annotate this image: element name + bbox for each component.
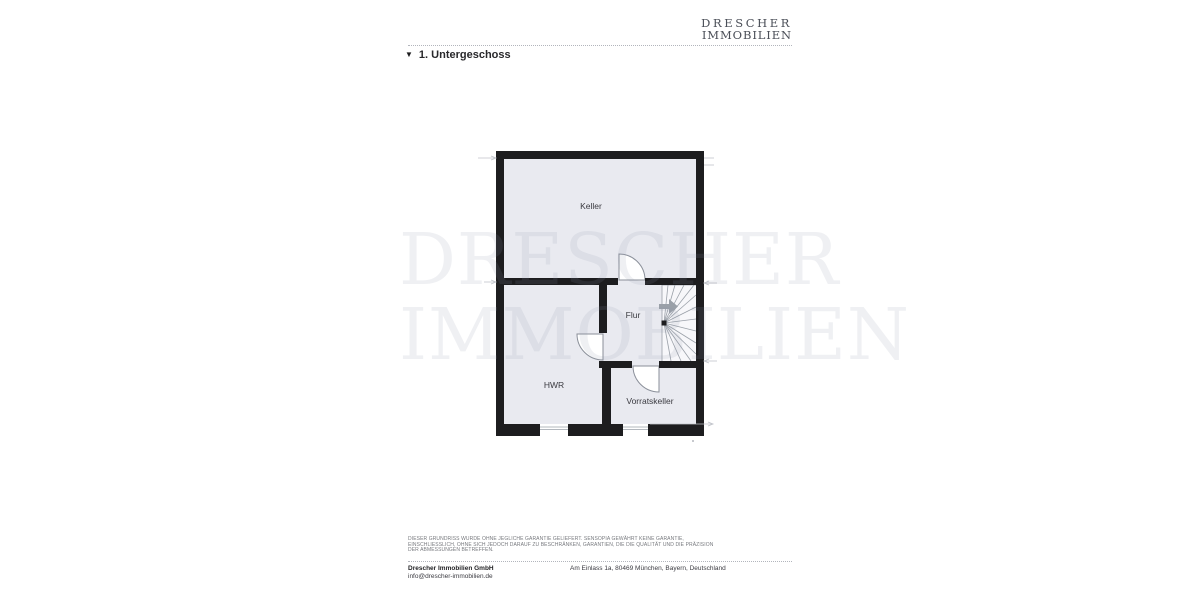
room-label-keller: Keller xyxy=(580,201,602,211)
staircase xyxy=(662,285,697,361)
window-hwr xyxy=(540,424,568,436)
floorplan-drawing xyxy=(0,0,1200,600)
room-label-flur: Flur xyxy=(626,310,641,320)
room-label-hwr: HWR xyxy=(544,380,564,390)
room-label-vorratskeller: Vorratskeller xyxy=(626,396,673,406)
window-vorratskeller xyxy=(623,424,648,436)
